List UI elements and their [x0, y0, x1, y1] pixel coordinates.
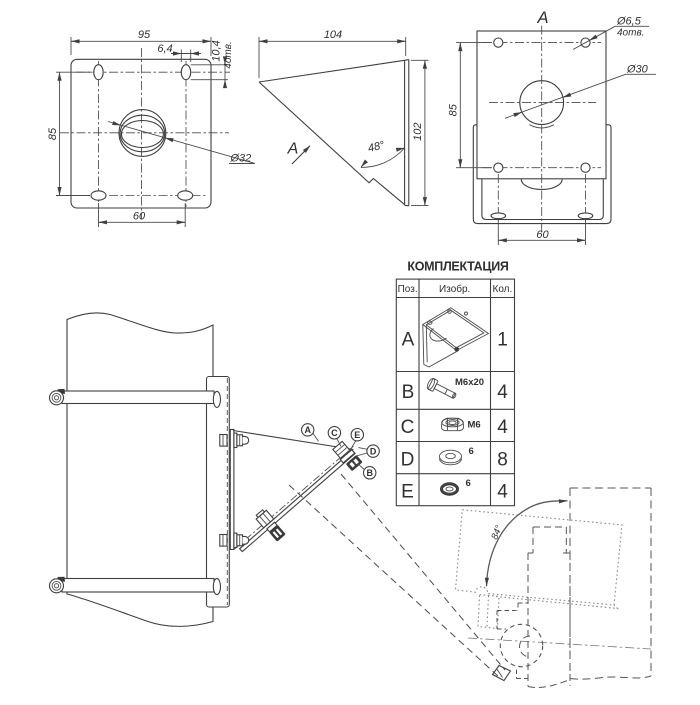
svg-text:Поз.: Поз. [398, 284, 418, 295]
svg-text:КОМПЛЕКТАЦИЯ: КОМПЛЕКТАЦИЯ [407, 260, 508, 274]
svg-text:Ø30: Ø30 [626, 64, 649, 76]
svg-text:M6x20: M6x20 [455, 377, 484, 388]
svg-text:60: 60 [536, 229, 549, 241]
svg-text:A: A [536, 9, 548, 27]
svg-text:C: C [401, 417, 415, 438]
svg-text:A: A [402, 330, 415, 351]
svg-text:6,4: 6,4 [157, 43, 172, 55]
svg-text:Ø6,5: Ø6,5 [616, 16, 642, 28]
svg-text:A: A [287, 141, 299, 158]
svg-text:85: 85 [448, 103, 460, 116]
svg-text:A: A [304, 425, 311, 435]
svg-text:E: E [354, 430, 360, 440]
svg-text:C: C [331, 428, 338, 438]
svg-text:Изобр.: Изобр. [439, 283, 470, 295]
svg-text:10,4: 10,4 [211, 40, 223, 61]
svg-text:104: 104 [324, 29, 342, 41]
svg-text:M6: M6 [468, 420, 481, 431]
svg-text:Ø32: Ø32 [230, 153, 252, 165]
svg-text:4: 4 [497, 417, 508, 438]
svg-text:Кол.: Кол. [493, 284, 513, 295]
svg-text:102: 102 [412, 123, 424, 141]
svg-text:B: B [366, 468, 373, 478]
svg-text:6: 6 [466, 478, 471, 489]
svg-text:4отв.: 4отв. [617, 28, 644, 39]
svg-text:4: 4 [497, 382, 508, 403]
svg-text:E: E [401, 482, 414, 503]
svg-text:1: 1 [497, 330, 508, 351]
svg-text:B: B [402, 382, 415, 403]
svg-text:60: 60 [133, 211, 146, 223]
svg-text:4отв.: 4отв. [223, 41, 234, 68]
svg-text:85: 85 [47, 127, 59, 140]
svg-text:D: D [401, 450, 415, 471]
svg-text:8: 8 [497, 450, 508, 471]
svg-text:4: 4 [497, 482, 508, 503]
svg-text:D: D [370, 446, 377, 456]
svg-text:6: 6 [469, 446, 474, 457]
svg-text:95: 95 [138, 29, 151, 41]
